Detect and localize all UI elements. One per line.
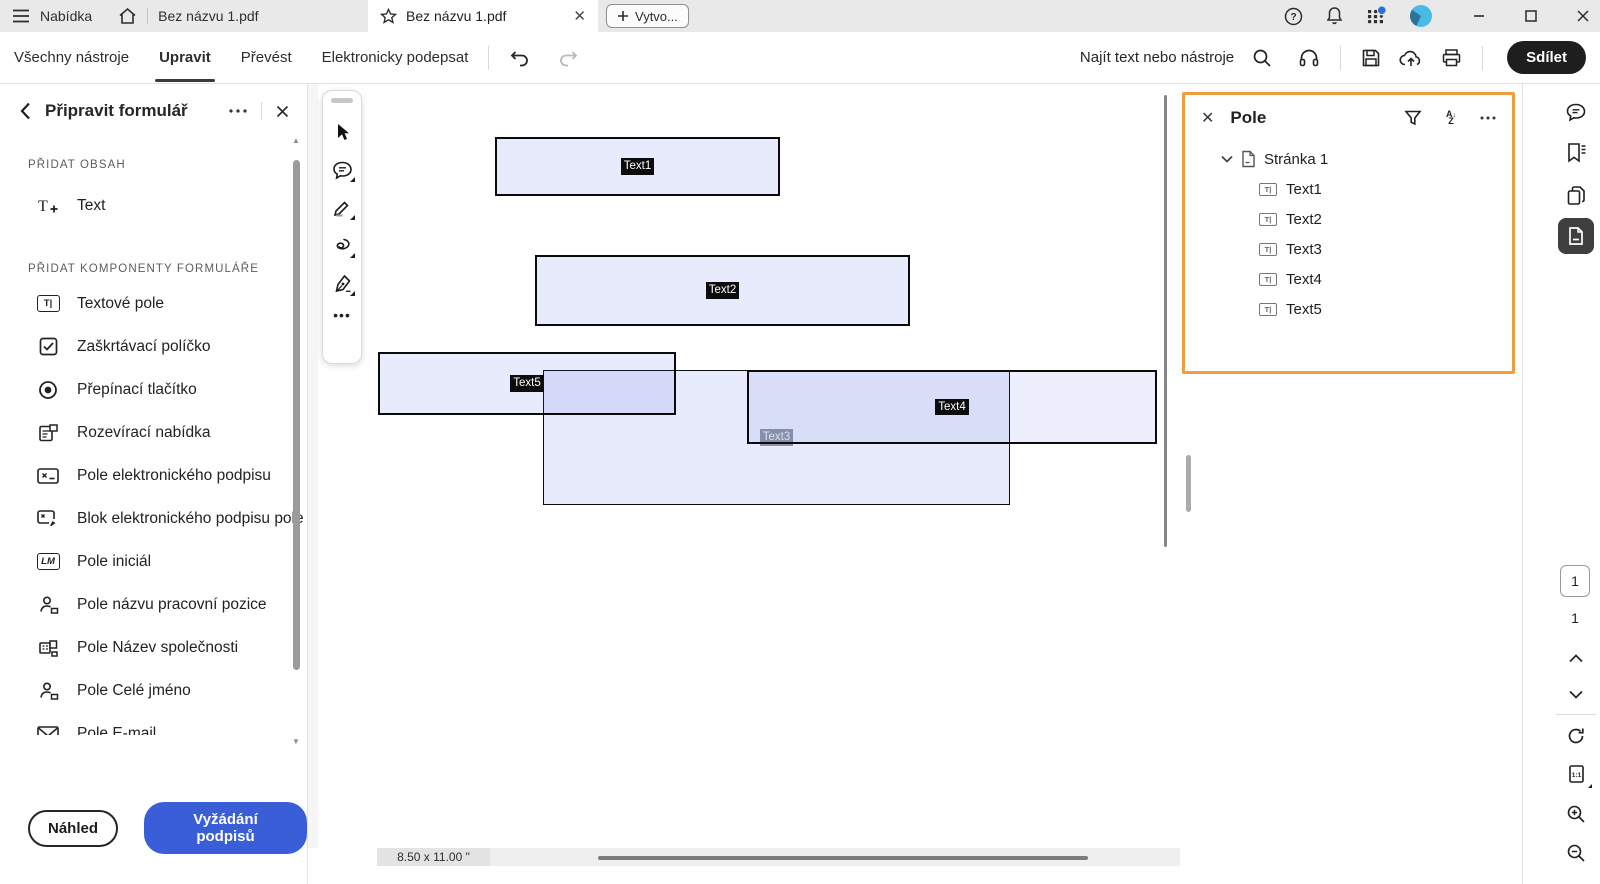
divider [1556, 714, 1596, 715]
component-full-name[interactable]: Pole Celé jméno [0, 669, 307, 712]
textfield-icon: T| [1259, 213, 1277, 226]
chevron-down-icon [1569, 690, 1583, 699]
zoom-in-button[interactable] [1564, 802, 1588, 826]
component-company[interactable]: Pole Název společnosti [0, 626, 307, 669]
document-tab[interactable]: Bez názvu 1.pdf ✕ [368, 0, 598, 32]
person-icon [36, 681, 60, 701]
fields-panel-close-icon[interactable]: ✕ [1201, 108, 1214, 128]
dropdown-icon [36, 423, 60, 443]
zoom-out-button[interactable] [1564, 841, 1588, 865]
svg-text:1:1: 1:1 [1571, 772, 1581, 779]
sort-az-icon[interactable]: A↓Z [1446, 111, 1456, 126]
component-label: Pole E-mail [77, 725, 156, 736]
vertical-scrollbar[interactable] [1164, 95, 1167, 547]
share-button[interactable]: Sdílet [1507, 41, 1586, 74]
component-checkbox[interactable]: Zaškrtávací políčko [0, 325, 307, 368]
person-icon [36, 595, 60, 615]
pencil-icon [332, 198, 352, 218]
tree-page-group[interactable]: Stránka 1 [1221, 150, 1512, 168]
plus-icon [617, 10, 629, 22]
quick-tools-palette: ••• [322, 90, 362, 364]
bookmark-icon [1565, 142, 1587, 163]
tree-field-label: Text5 [1286, 301, 1322, 318]
page-display-button[interactable]: 1:1 [1564, 762, 1588, 786]
comment-icon [1565, 103, 1587, 123]
filter-funnel-icon[interactable] [1404, 109, 1422, 127]
tab-convert[interactable]: Převést [241, 47, 292, 68]
redo-icon[interactable] [557, 49, 579, 67]
titlebar: Nabídka Bez názvu 1.pdf Bez názvu 1.pdf … [0, 0, 1600, 32]
field-label: Text2 [706, 282, 740, 298]
textfield-icon: T| [1259, 243, 1277, 256]
svg-text:T: T [38, 198, 48, 215]
tree-field-label: Text1 [1286, 181, 1322, 198]
component-label: Pole Název společnosti [77, 639, 238, 657]
form-field-text4[interactable]: Text4 [747, 370, 1157, 444]
tree-field-text1[interactable]: T| Text1 [1259, 181, 1512, 198]
chevron-down-icon[interactable] [1221, 155, 1233, 163]
component-list: T| Textové pole Zaškrtávací políčko Přep… [0, 282, 307, 735]
pen-nib-icon [332, 274, 353, 294]
status-strip: 8.50 x 11.00 " [377, 848, 1180, 866]
more-tools[interactable]: ••• [333, 307, 351, 323]
company-icon [36, 638, 60, 658]
divider [147, 8, 148, 24]
palette-drag-handle[interactable] [331, 98, 353, 103]
component-dropdown[interactable]: Rozevírací nabídka [0, 411, 307, 454]
textfield-icon: T| [37, 295, 60, 312]
page-thumbnails-panel-button[interactable] [1558, 218, 1594, 254]
zoom-out-icon [1566, 843, 1586, 863]
form-field-text2[interactable]: Text2 [535, 255, 910, 326]
back-chevron-icon[interactable] [20, 102, 31, 120]
previous-page-button[interactable] [1564, 646, 1588, 670]
scroll-down-arrow[interactable]: ▼ [292, 737, 300, 746]
hamburger-icon[interactable] [12, 9, 30, 23]
component-text-field[interactable]: T| Textové pole [0, 282, 307, 325]
field-label: Text4 [935, 399, 969, 415]
bookmarks-panel-button[interactable] [1564, 140, 1588, 164]
rotate-page-button[interactable] [1564, 724, 1588, 748]
tab-all-tools[interactable]: Všechny nástroje [14, 47, 129, 68]
sidebar-close-icon[interactable] [276, 105, 289, 118]
component-label: Přepínací tlačítko [77, 381, 197, 399]
save-icon[interactable] [1361, 48, 1381, 68]
undo-icon[interactable] [509, 49, 531, 67]
component-job-title[interactable]: Pole názvu pracovní pozice [0, 583, 307, 626]
toolbar: Všechny nástroje Upravit Převést Elektro… [0, 32, 1600, 84]
page-icon [1241, 150, 1256, 168]
form-field-text1[interactable]: Text1 [495, 137, 780, 196]
add-text-label: Text [77, 197, 105, 215]
tree-field-text5[interactable]: T| Text5 [1259, 301, 1512, 318]
component-label: Blok elektronického podpisu pole [77, 510, 304, 528]
page-thumbnails-icon [1567, 226, 1585, 246]
tab-title: Bez názvu 1.pdf [406, 8, 506, 24]
signature-block-icon [36, 510, 60, 528]
right-rail: 1 1 1:1 [1522, 84, 1600, 884]
text-add-icon: T [36, 196, 60, 216]
section-add-content: PŘIDAT OBSAH [28, 159, 307, 171]
search-icon[interactable] [1252, 48, 1272, 68]
component-initials[interactable]: LM Pole iniciál [0, 540, 307, 583]
comment-tool[interactable] [329, 157, 355, 183]
component-signature-block[interactable]: Blok elektronického podpisu pole [0, 497, 307, 540]
initials-icon: LM [37, 553, 60, 570]
form-field-text5[interactable]: Text5 [378, 352, 676, 415]
apps-grid-icon[interactable] [1366, 6, 1388, 26]
tree-field-label: Text4 [1286, 271, 1322, 288]
add-text-tool[interactable]: T Text [0, 184, 307, 227]
headphones-icon[interactable] [1298, 48, 1320, 68]
recent-doc-title[interactable]: Bez názvu 1.pdf [158, 8, 258, 24]
select-tool[interactable] [329, 119, 355, 145]
chevron-up-icon [1569, 654, 1583, 663]
radio-icon [36, 380, 60, 400]
rotate-icon [1566, 726, 1586, 746]
component-label: Pole iniciál [77, 553, 151, 571]
textfield-icon: T| [1259, 183, 1277, 196]
sidebar-title: Připravit formulář [45, 101, 188, 121]
document-canvas: ••• Text1 Text2 Text5 Text3 Text4 8.5 [308, 84, 1522, 884]
maximize-icon[interactable] [1524, 9, 1538, 23]
copy-pages-icon [1566, 185, 1587, 206]
draw-tool[interactable] [329, 195, 355, 221]
divider [1482, 46, 1483, 70]
textfield-icon: T| [1259, 273, 1277, 286]
actual-size-icon: 1:1 [1568, 764, 1585, 784]
total-pages-label: 1 [1560, 610, 1590, 626]
avatar[interactable] [1410, 5, 1432, 27]
cloud-upload-icon[interactable] [1399, 48, 1423, 68]
divider [488, 46, 489, 70]
tree-field-label: Text2 [1286, 211, 1322, 228]
scroll-up-arrow[interactable]: ▲ [292, 136, 300, 145]
canvas-gutter [308, 84, 318, 848]
divider [261, 102, 262, 120]
page-size-label: 8.50 x 11.00 " [377, 848, 490, 866]
component-label: Pole názvu pracovní pozice [77, 596, 267, 614]
bell-icon[interactable] [1325, 6, 1344, 26]
lasso-tool[interactable] [329, 233, 355, 259]
preview-button[interactable]: Náhled [28, 810, 118, 847]
component-label: Textové pole [77, 295, 164, 313]
sign-tool[interactable] [329, 271, 355, 297]
component-label: Pole elektronického podpisu [77, 467, 271, 485]
component-signature-field[interactable]: Pole elektronického podpisu [0, 454, 307, 497]
tree-field-text4[interactable]: T| Text4 [1259, 271, 1512, 288]
zoom-in-icon [1566, 804, 1586, 824]
comment-bubble-icon [332, 161, 353, 180]
window-close-icon[interactable] [1576, 9, 1590, 23]
field-label: Text5 [510, 375, 544, 391]
tab-edit[interactable]: Upravit [159, 47, 211, 68]
divider [1340, 46, 1341, 70]
field-label: Text1 [621, 158, 655, 174]
sidebar-more-icon[interactable] [229, 109, 247, 113]
fields-panel-title: Pole [1230, 108, 1266, 128]
star-icon[interactable] [380, 8, 397, 24]
section-components: PŘIDAT KOMPONENTY FORMULÁŘE [28, 263, 307, 275]
panel-scrollbar-thumb[interactable] [1186, 455, 1191, 512]
tree-field-label: Text3 [1286, 241, 1322, 258]
signature-field-icon [36, 468, 60, 484]
menu-button[interactable]: Nabídka [40, 8, 92, 24]
component-label: Pole Celé jméno [77, 682, 191, 700]
prepare-form-sidebar: Připravit formulář PŘIDAT OBSAH T Text P… [0, 84, 308, 884]
print-icon[interactable] [1441, 48, 1462, 68]
component-label: Zaškrtávací políčko [77, 338, 211, 356]
component-radio[interactable]: Přepínací tlačítko [0, 368, 307, 411]
search-label[interactable]: Najít text nebo nástroje [1080, 49, 1234, 66]
acrobat-window: Nabídka Bez názvu 1.pdf Bez názvu 1.pdf … [0, 0, 1600, 884]
tree-field-text3[interactable]: T| Text3 [1259, 241, 1512, 258]
sidebar-scrollbar[interactable] [293, 160, 300, 670]
attachments-panel-button[interactable] [1564, 183, 1588, 207]
next-page-button[interactable] [1564, 682, 1588, 706]
minimize-icon[interactable] [1472, 9, 1486, 23]
component-email[interactable]: Pole E-mail [0, 712, 307, 735]
ellipsis-icon[interactable] [1480, 116, 1496, 120]
create-button[interactable]: Vytvo... [606, 4, 689, 28]
comments-panel-button[interactable] [1564, 101, 1588, 125]
email-icon [36, 726, 60, 736]
fields-panel: ✕ Pole A↓Z [1182, 92, 1515, 374]
home-icon[interactable] [118, 7, 137, 25]
current-page-input[interactable]: 1 [1560, 565, 1590, 597]
tree-field-text2[interactable]: T| Text2 [1259, 211, 1512, 228]
page-group-label: Stránka 1 [1264, 151, 1328, 168]
request-signatures-button[interactable]: Vyžádání podpisů [144, 802, 307, 854]
cursor-arrow-icon [333, 122, 351, 142]
textfield-icon: T| [1259, 303, 1277, 316]
svg-text:?: ? [1290, 12, 1296, 23]
tab-close-icon[interactable]: ✕ [573, 7, 586, 25]
help-icon[interactable]: ? [1284, 7, 1303, 26]
tab-esign[interactable]: Elektronicky podepsat [322, 47, 469, 68]
create-button-label: Vytvo... [635, 9, 678, 24]
horizontal-scrollbar[interactable] [598, 856, 1088, 860]
lasso-icon [332, 237, 352, 255]
component-label: Rozevírací nabídka [77, 424, 211, 442]
checkbox-icon [36, 337, 60, 356]
